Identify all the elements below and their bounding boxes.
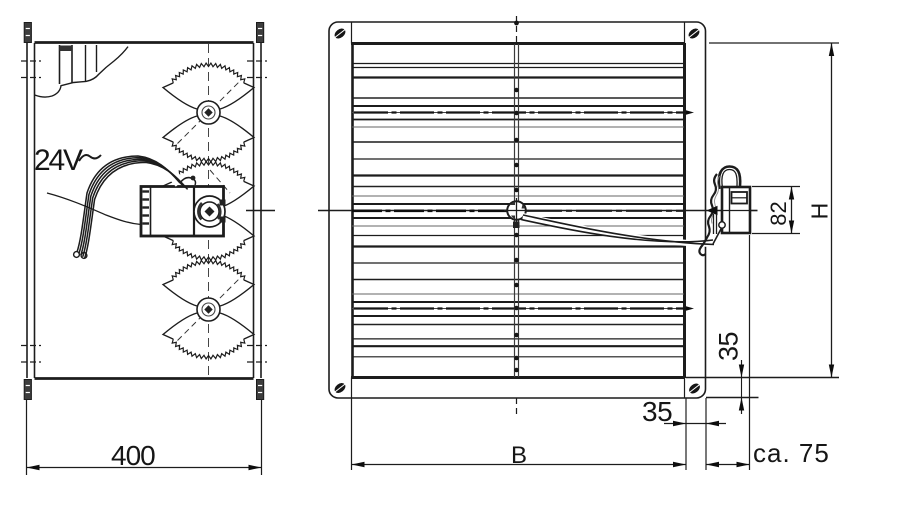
svg-text:B: B bbox=[511, 442, 527, 469]
svg-text:400: 400 bbox=[111, 440, 155, 471]
svg-text:35: 35 bbox=[714, 332, 744, 361]
svg-text:H: H bbox=[807, 203, 833, 220]
svg-text:ca. 75: ca. 75 bbox=[753, 438, 830, 468]
svg-text:82: 82 bbox=[766, 201, 791, 225]
svg-text:24V: 24V bbox=[34, 144, 83, 177]
svg-text:35: 35 bbox=[642, 396, 672, 427]
